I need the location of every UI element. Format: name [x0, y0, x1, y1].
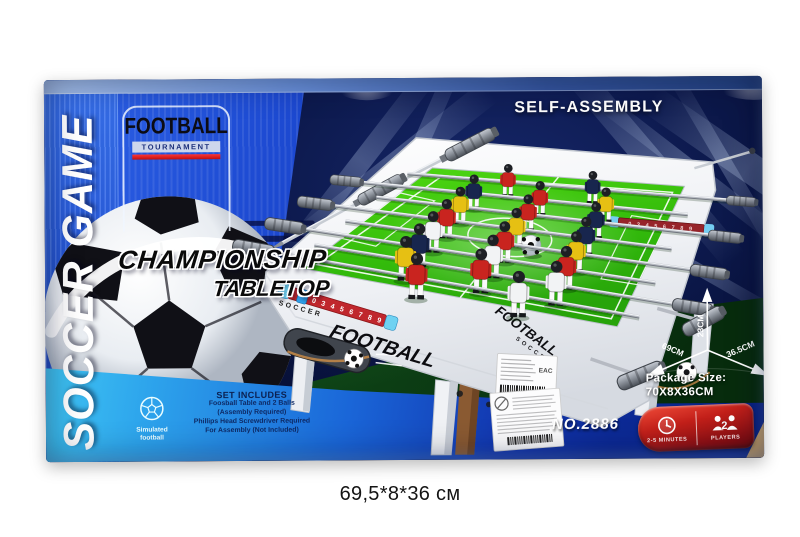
product-photo: 0 3 4 5 6 7 8 9 0 3 4 5 6 7 8 9 SOCCER F… [0, 0, 800, 537]
headline-championship: CHAMPIONSHIP [117, 243, 334, 275]
simulated-label-2: football [130, 435, 174, 444]
dim-width-label: 36.5CM [725, 339, 756, 360]
football-line-icon [139, 395, 165, 421]
football-tournament-logo: FOOTBALL TOURNAMENT [122, 105, 230, 160]
rod-handle [330, 174, 365, 187]
package-size-value: 70X8X36CM [646, 386, 764, 401]
clock-icon [656, 415, 677, 436]
info-badge: 2-5 MINUTES 2 PLAYERS [637, 403, 755, 453]
set-includes-block: SET INCLUDES Foosball Table and 2 Balls … [174, 389, 330, 436]
dim-height-label: 23CM [695, 314, 705, 337]
eac-mark: EAC [539, 367, 553, 375]
rod-handle [726, 195, 759, 207]
headline-tabletop: TABLETOP [114, 275, 331, 302]
simulated-football-badge: Simulated football [130, 395, 174, 443]
rod-handle [297, 196, 336, 212]
minutes-label: 2-5 MINUTES [647, 436, 688, 444]
caption-dimensions: 69,5*8*36 см [0, 483, 800, 506]
players-icon: 2 [711, 412, 740, 433]
headline-block: CHAMPIONSHIP TABLETOP [114, 243, 334, 302]
simulated-label-1: Simulated [130, 426, 174, 435]
logo-football-text: FOOTBALL [122, 114, 230, 141]
minutes-cell: 2-5 MINUTES [637, 411, 696, 447]
game-box: 0 3 4 5 6 7 8 9 0 3 4 5 6 7 8 9 SOCCER F… [44, 76, 764, 462]
set-includes-line: Phillips Head Screwdriver Required [174, 417, 330, 427]
rod-handle [708, 230, 745, 244]
dim-length-label: 69CM [660, 341, 685, 359]
self-assembly-text: SELF-ASSEMBLY [484, 98, 694, 117]
vertical-title: SOCCER GAME [54, 112, 105, 452]
dimension-arrows: 23CM 69CM 36.5CM [641, 286, 764, 383]
package-size-label: Package Size: [646, 372, 765, 387]
players-count: 2 [721, 419, 728, 431]
rod-handle [689, 264, 730, 281]
package-size-block: Package Size: 70X8X36CM [646, 372, 765, 400]
set-includes-line: For Assembly (Not Included) [174, 426, 330, 436]
players-label: PLAYERS [711, 434, 741, 441]
players-cell: 2 PLAYERS [695, 408, 755, 444]
rod-handle [264, 217, 307, 235]
